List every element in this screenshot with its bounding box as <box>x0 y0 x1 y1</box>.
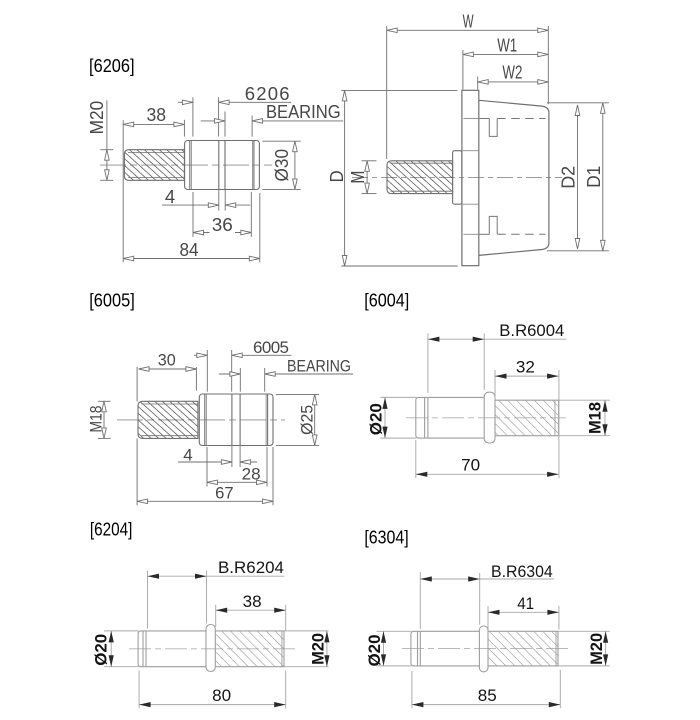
svg-text:Ø30: Ø30 <box>271 149 292 182</box>
svg-text:M20: M20 <box>86 101 107 135</box>
svg-text:28: 28 <box>242 465 261 484</box>
svg-text:38: 38 <box>147 104 167 125</box>
svg-text:4: 4 <box>183 445 192 464</box>
svg-text:Ø20: Ø20 <box>92 634 111 666</box>
svg-text:[6206]: [6206] <box>89 55 135 76</box>
svg-text:M18: M18 <box>87 406 106 433</box>
svg-text:M: M <box>347 171 368 184</box>
svg-text:[6005]: [6005] <box>89 290 135 311</box>
svg-text:70: 70 <box>461 456 480 475</box>
svg-text:Ø25: Ø25 <box>297 405 316 435</box>
svg-text:W: W <box>463 10 474 31</box>
svg-text:M20: M20 <box>308 633 327 665</box>
svg-text:W1: W1 <box>497 35 517 56</box>
svg-text:W2: W2 <box>502 62 522 83</box>
svg-text:B.R6204: B.R6204 <box>218 558 284 577</box>
svg-text:84: 84 <box>180 239 199 260</box>
svg-text:[6304]: [6304] <box>364 527 408 548</box>
svg-text:67: 67 <box>215 484 234 503</box>
svg-text:32: 32 <box>516 358 535 377</box>
svg-text:[6004]: [6004] <box>364 290 409 311</box>
svg-text:M18: M18 <box>586 402 605 434</box>
svg-text:BEARING: BEARING <box>266 101 341 122</box>
svg-text:B.R6004: B.R6004 <box>499 321 564 340</box>
svg-text:M20: M20 <box>587 633 606 665</box>
svg-text:6005: 6005 <box>253 338 289 357</box>
svg-text:[6204]: [6204] <box>90 519 133 540</box>
svg-text:D1: D1 <box>583 166 604 188</box>
svg-text:B.R6304: B.R6304 <box>491 562 553 581</box>
svg-text:BEARING: BEARING <box>287 357 351 376</box>
svg-text:Ø20: Ø20 <box>366 403 385 435</box>
svg-text:Ø20: Ø20 <box>365 635 384 667</box>
svg-text:4: 4 <box>165 186 175 207</box>
svg-text:D2: D2 <box>558 166 579 189</box>
svg-text:36: 36 <box>212 214 233 235</box>
svg-text:85: 85 <box>478 686 497 705</box>
svg-text:41: 41 <box>517 594 534 613</box>
svg-text:38: 38 <box>243 592 262 611</box>
svg-text:D: D <box>326 170 347 182</box>
svg-text:30: 30 <box>158 351 176 370</box>
svg-text:80: 80 <box>212 686 231 705</box>
